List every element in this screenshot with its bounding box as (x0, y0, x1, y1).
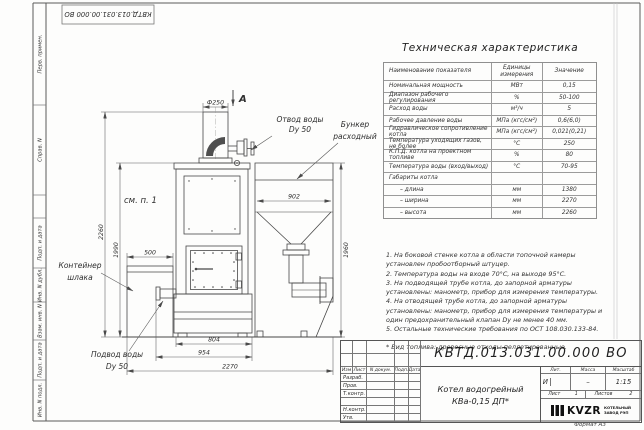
spec-row: – длинамм1380 (384, 184, 596, 196)
strip-label-inv-podl: Инв. N подл. (38, 383, 44, 417)
logo-sub-line2: ЗАВОД РЭП (604, 411, 631, 416)
spec-row: Гидравлическое сопротивление котлаМПа (к… (384, 126, 596, 138)
slag-container (127, 266, 173, 337)
doc-number-box: КВТД.013.031.00.000 ВО (62, 5, 154, 24)
sign-cell (367, 406, 395, 414)
sign-cell (395, 390, 409, 398)
sign-cell (395, 406, 409, 414)
boiler-top-plate (174, 163, 250, 169)
spec-row: Расход водым³/ч5 (384, 103, 596, 115)
callout-water-outlet-line1: Отвод воды (277, 115, 324, 124)
dim-chimney-label: Ф250 (207, 100, 224, 107)
revision-spare-cell (341, 354, 353, 367)
view-a-marker: А (233, 90, 247, 106)
revision-spare-cell (395, 341, 409, 354)
callout-water-inlet-line2: Dу 50 (106, 362, 128, 371)
product-name-cell: Котел водогрейный КВа-0,15 ДП* (421, 367, 541, 422)
revision-spare-cell (367, 354, 395, 367)
boiler-foot-right (238, 333, 247, 337)
strip-label-podp-data-1: Подп. и дата (38, 225, 44, 260)
sign-cell (409, 374, 421, 382)
scale-header: Масштаб (606, 367, 641, 374)
sign-cell (395, 414, 409, 422)
rev-header-data: Дата (409, 367, 421, 374)
note-4: 4. На отводящей трубе котла, до запорной… (386, 297, 612, 325)
sign-row-nkontr: Н.контр. (341, 406, 367, 414)
sheet-label: Лист (548, 392, 560, 397)
see-note-label: см. п. 1 (124, 196, 157, 206)
sign-cell (367, 414, 395, 422)
note-1: 1. На боковой стенке котла в области топ… (386, 251, 612, 270)
doc-number-rotated: КВТД.013.031.00.000 ВО (64, 10, 152, 18)
callout-water-outlet-line2: Dу 50 (289, 125, 311, 134)
product-name-line1: Котел водогрейный (438, 384, 524, 394)
note-3: 3. На подводящей трубе котла, до запорно… (386, 279, 612, 298)
revision-spare-cell (367, 341, 395, 354)
dim-2260-label: 2260 (98, 224, 105, 240)
revision-spare-cell (409, 354, 421, 367)
spec-header-row: Наименование показателя Единицы измерени… (384, 63, 596, 80)
mass-header: Масса (571, 367, 606, 374)
spec-row: – ширинамм2270 (384, 195, 596, 207)
sign-cell (409, 406, 421, 414)
panel-bolts (188, 178, 235, 231)
note-5: 5. Остальные технические требования по О… (386, 325, 612, 334)
dim-2270-label: 2270 (222, 364, 238, 371)
revision-spare-grid (341, 341, 421, 367)
sign-row-blank (341, 398, 367, 406)
scale-value: 1:15 (606, 374, 641, 391)
sign-cell (409, 382, 421, 390)
door-hinge-top (236, 253, 242, 260)
feeder-downpipe (289, 255, 303, 283)
format-label: Формат А3 (545, 422, 635, 428)
drawing-sheet: Перв. примен. Справ. N Подп. и дата Инв.… (0, 0, 644, 430)
spec-row: К.П.Д. котла на проектном топливе%80 (384, 149, 596, 161)
spec-row: Температура воды (вход/выход)°С70-95 (384, 161, 596, 173)
sign-cell (409, 414, 421, 422)
spec-table-title: Техническая характеристика (383, 42, 597, 54)
water-outlet-valve (228, 139, 254, 156)
sign-cell (409, 398, 421, 406)
sheets-value: 2 (629, 392, 632, 397)
furnace-door (186, 246, 242, 294)
dimension-total-height (101, 112, 203, 337)
dim-804-label: 804 (208, 337, 220, 344)
dim-500-label: 500 (144, 250, 156, 257)
note-2: 2. Температура воды на входе 70°С, на вы… (386, 270, 612, 279)
rev-header-podp: Подп. (395, 367, 409, 374)
view-a-label: А (238, 94, 247, 105)
sign-cell (367, 390, 395, 398)
notes-block: 1. На боковой стенке котла в области топ… (386, 251, 612, 352)
lit-header: Лит. (541, 367, 571, 374)
callout-slag-line1: Контейнер (59, 261, 102, 270)
strip-label-vzam-inv: Взам. инв. N (38, 304, 44, 338)
mass-value: – (571, 374, 606, 391)
revision-spare-cell (341, 341, 353, 354)
ash-section (174, 294, 252, 333)
callout-slag-line2: шлака (67, 273, 93, 282)
strip-label-sprav-n: Справ. N (38, 138, 44, 162)
dim-1990-label: 1990 (113, 242, 120, 258)
upper-panel (184, 176, 240, 234)
door-hinge-bottom (236, 281, 242, 288)
spec-row: Габариты котла (384, 172, 596, 184)
lit-mass-scale-block: Лит. Масса Масштаб И – 1:15 Лист 1 Листо… (541, 367, 641, 422)
sign-cell (367, 398, 395, 406)
sign-cell (409, 390, 421, 398)
revision-spare-cell (353, 354, 367, 367)
sign-cell (395, 398, 409, 406)
sign-row-tkontr: Т.контр. (341, 390, 367, 398)
strip-label-perv-primen: Перв. примен. (38, 35, 44, 74)
strip-label-inv-dubl: Инв. N дубл. (38, 268, 44, 302)
callout-bunker-line1: Бункер (341, 120, 370, 129)
sign-cell (367, 374, 395, 382)
rev-header-ndocum: N докум. (367, 367, 395, 374)
callout-water-inlet-line1: Подвод воды (91, 350, 143, 359)
revision-spare-cell (395, 354, 409, 367)
sign-row-utv: Утв. (341, 414, 367, 422)
lit-value: И (541, 378, 551, 386)
sign-row-razrab: Разраб. (341, 374, 367, 382)
spec-header-name: Наименование показателя (384, 63, 492, 80)
fold-line (614, 3, 617, 339)
spec-table: Наименование показателя Единицы измерени… (383, 62, 597, 219)
spec-row: Рабочее давление водыМПа (кгс/см²)0,6(6,… (384, 115, 596, 127)
dim-954-label: 954 (198, 350, 210, 357)
dim-1960-label: 1960 (343, 242, 350, 258)
revision-spare-cell (409, 341, 421, 354)
strip-label-podp-data-2: Подп. и дата (38, 342, 44, 377)
product-name-line2: КВа-0,15 ДП* (452, 396, 509, 406)
manufacturer-logo: KVZR КОТЕЛЬНЫЙ ЗАВОД РЭП (541, 399, 641, 422)
sign-row-prov: Пров. (341, 382, 367, 390)
boiler-foot-left (178, 333, 187, 337)
document-designation: КВТД.013.031.00.000 ВО (421, 341, 641, 367)
sign-cell (395, 382, 409, 390)
dim-902-label: 902 (288, 194, 300, 201)
callout-bunker-line2: расходный (332, 132, 377, 141)
spec-row: Температура уходящих газов, не более°С25… (384, 138, 596, 150)
spec-row: Номинальная мощностьМВт0,15 (384, 80, 596, 92)
spec-row: Диапазон рабочего регулирования%50-100 (384, 92, 596, 104)
kvzr-logo-mark (551, 405, 564, 416)
spec-row: – высотамм2260 (384, 207, 596, 219)
bunker-neck (287, 244, 305, 250)
sign-cell (395, 374, 409, 382)
bunker-foot-left (257, 331, 263, 337)
boiler-drawing (122, 107, 342, 337)
title-block: КВТД.013.031.00.000 ВО Изм Лист N докум.… (340, 340, 642, 423)
spec-header-units: Единицы измерения (492, 63, 543, 80)
revision-spare-cell (353, 341, 367, 354)
fuel-bunker (255, 163, 333, 337)
sign-cell (367, 382, 395, 390)
rev-header-izm: Изм (341, 367, 353, 374)
signature-grid: Изм Лист N докум. Подп. Дата Разраб. Про… (341, 367, 421, 422)
sheet-value: 1 (575, 392, 578, 397)
rev-header-list: Лист (353, 367, 367, 374)
kvzr-logo-text: KVZR (567, 405, 601, 417)
sheets-label: Листов (595, 392, 613, 397)
spec-header-value: Значение (543, 63, 596, 80)
bunker-foot-right (301, 331, 307, 337)
